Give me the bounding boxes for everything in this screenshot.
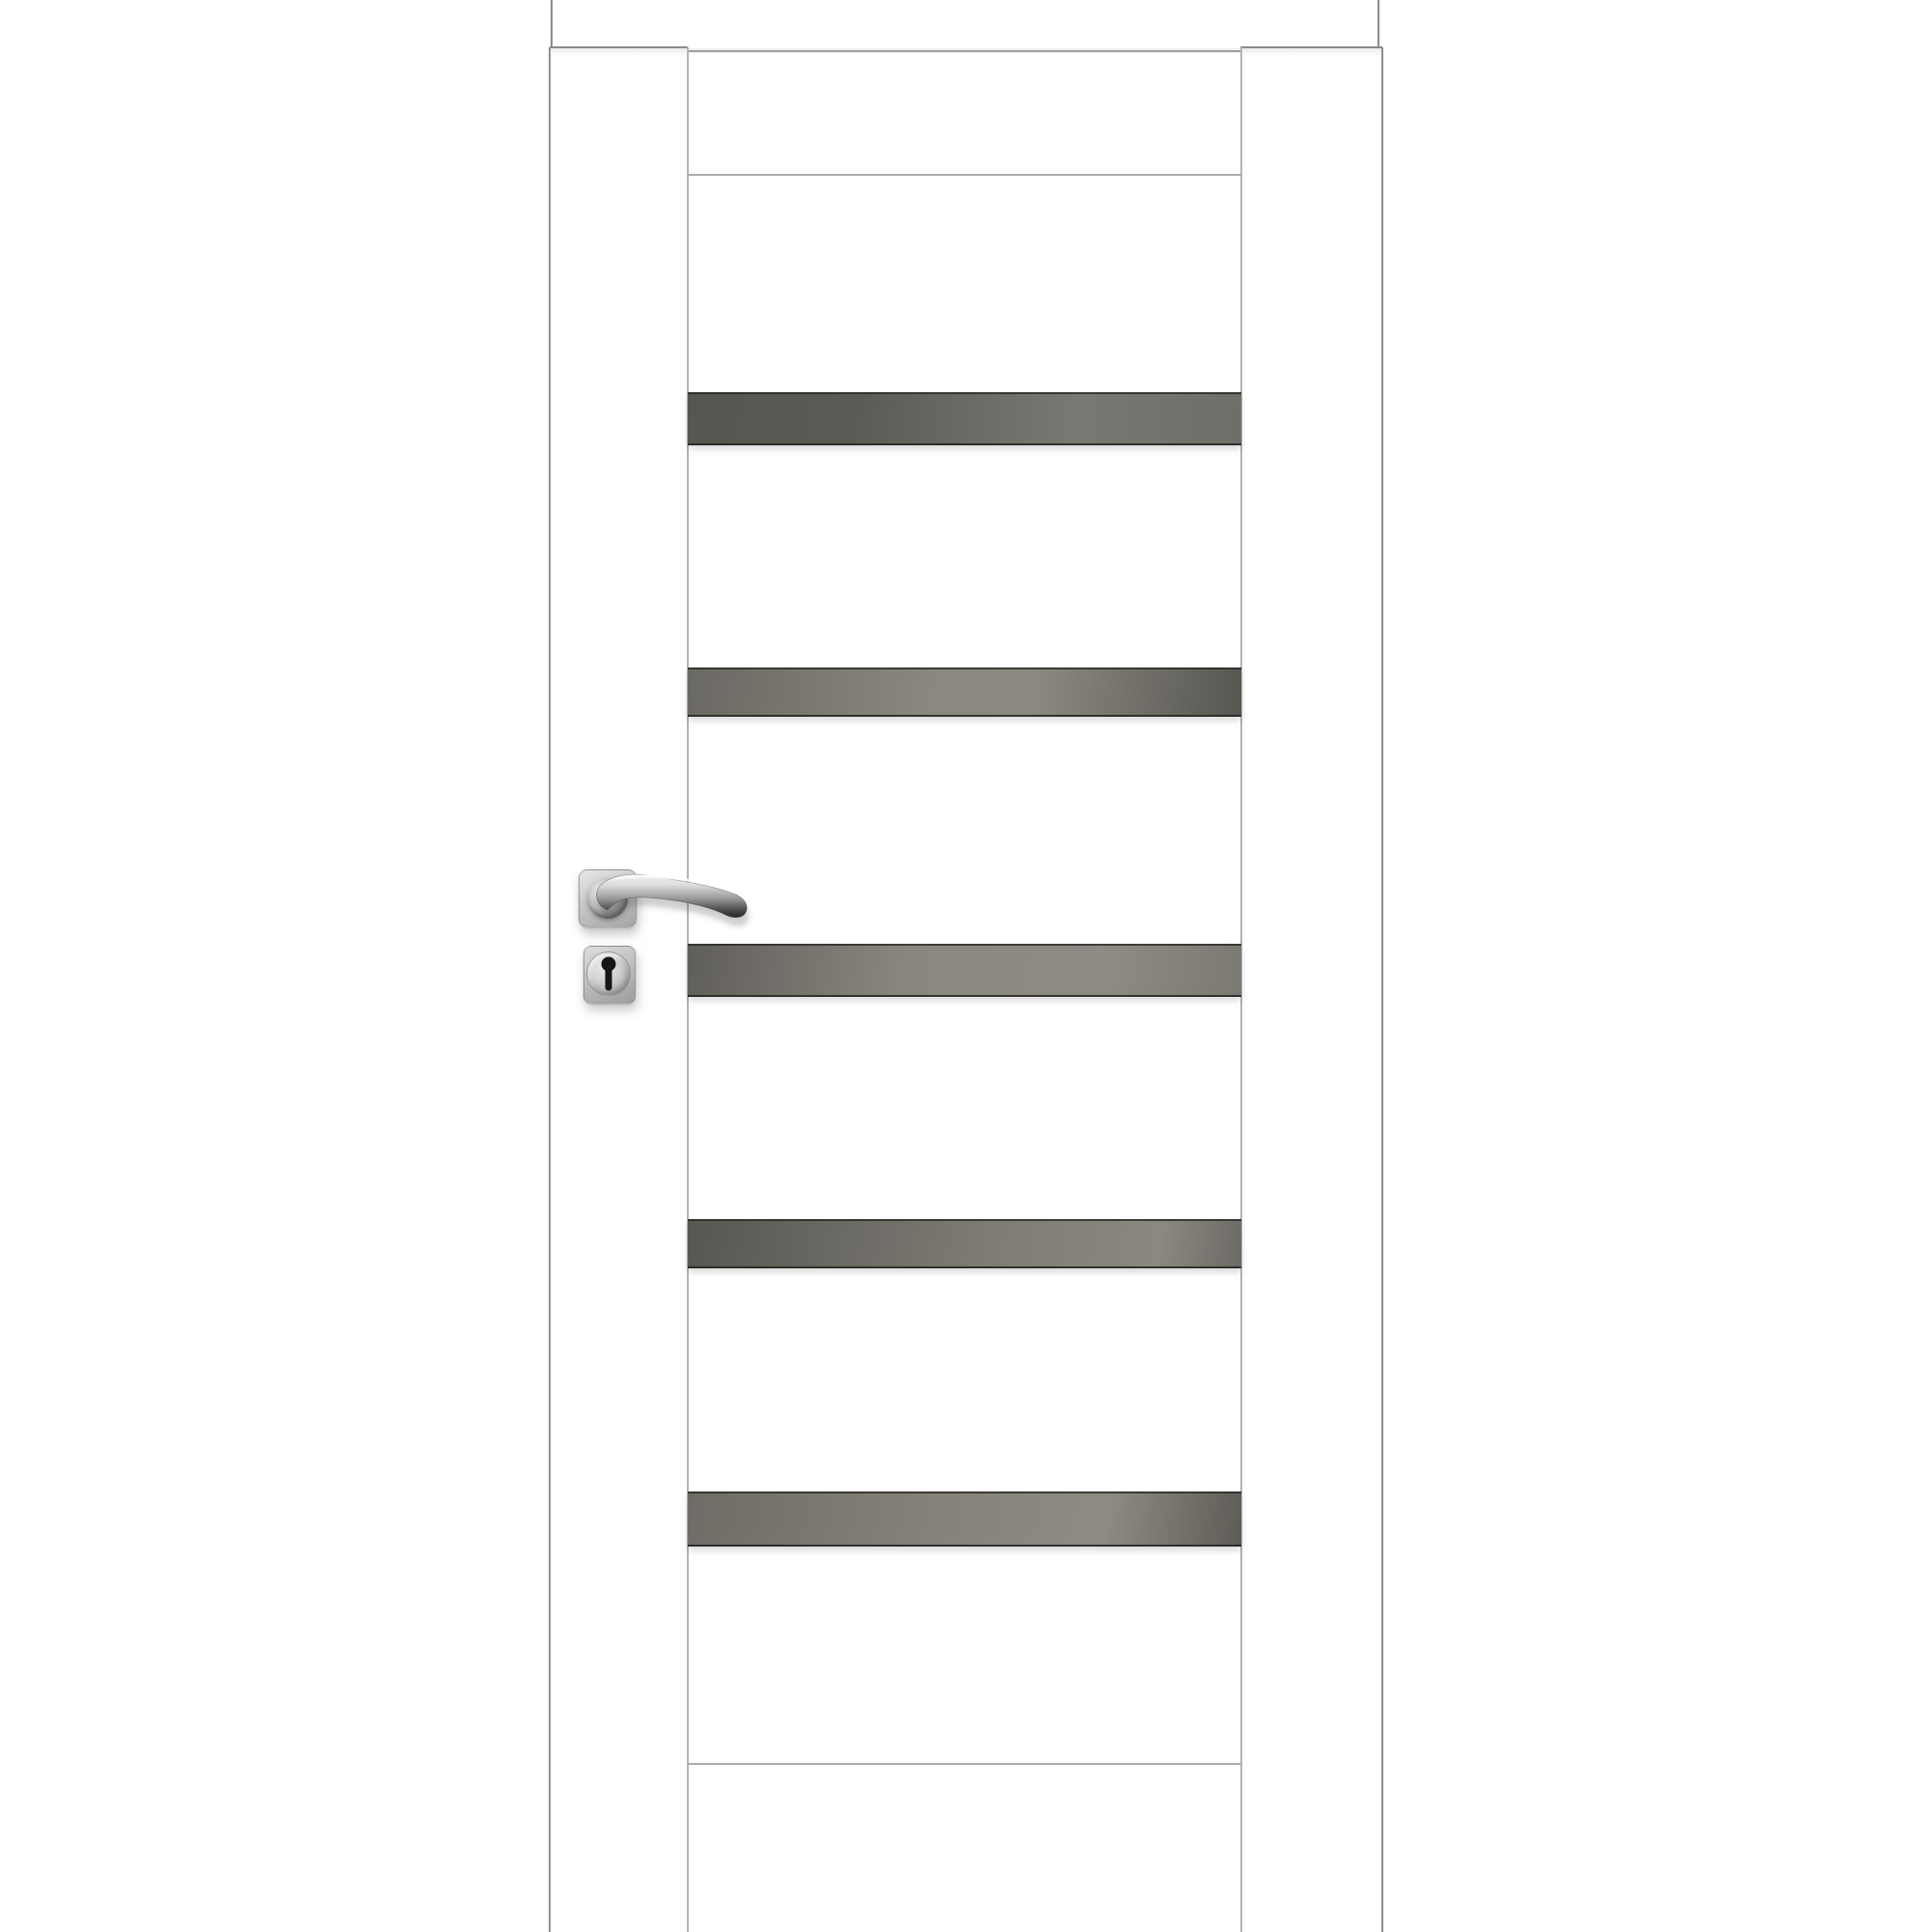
top-rail-line	[688, 174, 1241, 176]
frame-post-right	[1378, 0, 1379, 47]
glass-strip-4	[688, 1219, 1241, 1268]
glass-strip-5	[688, 1492, 1241, 1547]
glass-strip-1	[688, 392, 1241, 445]
glass-strip-3	[688, 944, 1241, 997]
keyhole-icon	[583, 952, 634, 998]
panel-top-line	[688, 50, 1241, 52]
leaf-right-edge	[1381, 47, 1383, 1932]
lever-body	[597, 874, 748, 918]
glass-strip-2	[688, 668, 1241, 717]
leaf-top-edge-right	[1240, 46, 1382, 48]
leaf-top-edge-left	[550, 46, 688, 48]
bottom-rail-line	[688, 1763, 1241, 1765]
leaf-left-edge	[549, 47, 551, 1932]
lever-handle	[580, 858, 758, 927]
frame-post-left	[551, 0, 553, 47]
door-product-photo	[0, 0, 1932, 1932]
